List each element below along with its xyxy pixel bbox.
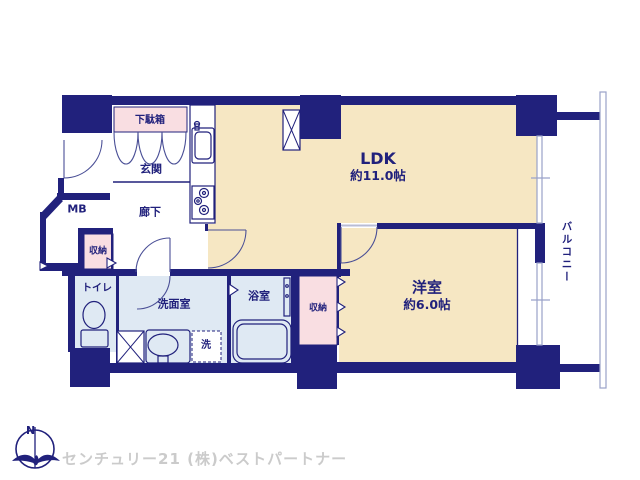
entrance-door-arc [64, 140, 102, 178]
company-watermark: センチュリー21 (株)ベストパートナー [62, 448, 347, 469]
room-fills [75, 105, 537, 364]
pipe-space-icon [283, 110, 300, 150]
room-label-yokushitsu: 浴室 [248, 291, 270, 302]
room-label-laundry: 洗 [201, 341, 211, 351]
floor-plan-page: 下駄箱 玄関 廊下 MB 収納 トイレ 洗面室 洗 浴室 収納 LDK 約11.… [0, 0, 640, 480]
pillar [70, 348, 110, 387]
compass-north-label: N [26, 424, 35, 437]
mb-chamfer-wall [40, 196, 63, 219]
room-label-shunou2: 収納 [309, 305, 327, 314]
room-label-ldk: LDK [360, 151, 396, 167]
pillar [516, 95, 557, 136]
floor-plan-drawing [0, 0, 640, 480]
pipe-space-icon [117, 331, 144, 363]
room-label-yoshitsu: 洋室 [412, 281, 442, 296]
pillar [62, 95, 112, 133]
ldk-window [537, 136, 542, 223]
balcony-rail [600, 92, 606, 388]
north-compass-icon [12, 427, 60, 468]
room-label-toilet: トイレ [82, 284, 112, 294]
pillar [300, 95, 341, 139]
yoshitsu-window [537, 263, 542, 345]
room-label-mb: MB [67, 204, 86, 215]
getabako-door-arcs [114, 132, 186, 164]
pillar [516, 345, 560, 389]
room-size-yoshitsu: 約6.0帖 [403, 299, 450, 312]
room-label-senmenshitsu: 洗面室 [158, 299, 191, 310]
room-label-genkan: 玄関 [140, 164, 162, 175]
room-size-ldk: 約11.0帖 [350, 170, 406, 183]
room-label-getabako: 下駄箱 [135, 116, 165, 126]
pillar [297, 345, 337, 389]
room-label-balcony: バルコニー [561, 221, 572, 284]
room-label-shunou1: 収納 [89, 248, 107, 257]
room-label-rouka: 廊下 [139, 207, 161, 218]
kitchen-counter [190, 105, 215, 223]
